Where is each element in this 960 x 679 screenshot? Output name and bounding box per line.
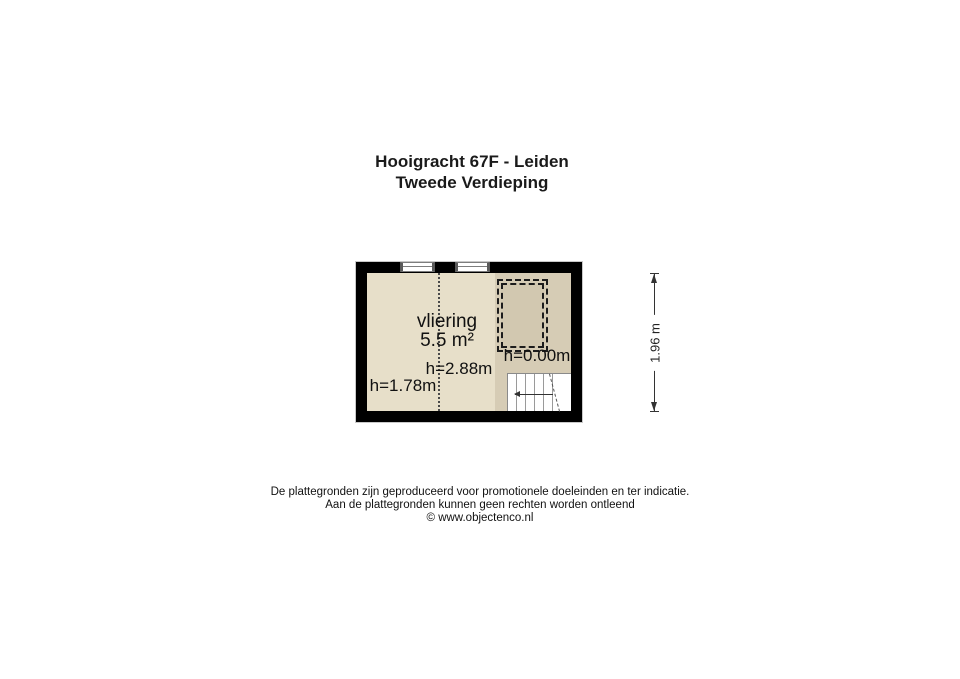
dimension-label: 1.96 m xyxy=(648,315,663,371)
disclaimer-line-3: © www.objectenco.nl xyxy=(0,512,960,525)
stair-direction-arrow-icon xyxy=(515,394,553,395)
room-area-label: 5.5 m² xyxy=(420,330,474,352)
disclaimer: De plattegronden zijn geproduceerd voor … xyxy=(0,486,960,525)
floorplan-page: Hooigracht 67F - Leiden Tweede Verdiepin… xyxy=(0,0,960,679)
title-floor: Tweede Verdieping xyxy=(375,172,569,193)
room-interior: vliering 5.5 m² h=2.88m h=1.78m h=0.00m xyxy=(367,273,571,411)
dimension-end-cap-bottom xyxy=(650,411,659,412)
height-left-label: h=1.78m xyxy=(370,376,437,396)
roof-hatch-inner-outline xyxy=(501,283,544,348)
page-title: Hooigracht 67F - Leiden Tweede Verdiepin… xyxy=(375,151,569,193)
roof-hatch-outline xyxy=(497,279,548,352)
title-address: Hooigracht 67F - Leiden xyxy=(375,151,569,172)
arrowhead-down-icon xyxy=(651,402,657,411)
staircase xyxy=(507,373,571,411)
window-pane-line xyxy=(403,266,432,267)
floor-plan: vliering 5.5 m² h=2.88m h=1.78m h=0.00m xyxy=(356,262,582,422)
height-right-label: h=0.00m xyxy=(504,346,571,366)
dimension-arrow: 1.96 m xyxy=(648,273,662,412)
window-icon xyxy=(455,262,490,272)
window-pane-line xyxy=(458,266,487,267)
disclaimer-line-1: De plattegronden zijn geproduceerd voor … xyxy=(0,486,960,499)
stair-treads xyxy=(516,374,553,411)
disclaimer-line-2: Aan de plattegronden kunnen geen rechten… xyxy=(0,499,960,512)
window-icon xyxy=(400,262,435,272)
